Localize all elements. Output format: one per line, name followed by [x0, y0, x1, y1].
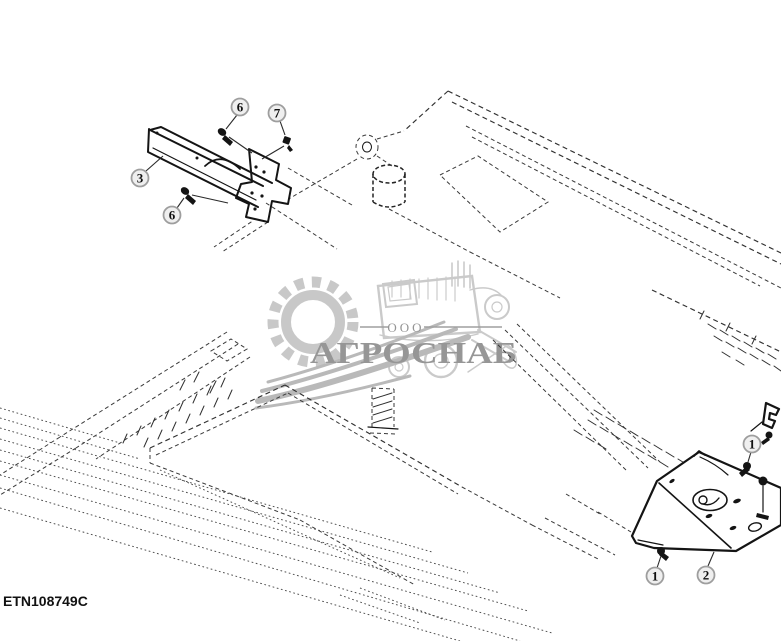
cylinder-port [373, 165, 405, 207]
clip-bracket [751, 403, 779, 431]
callout-6-lower: 6 [164, 195, 229, 224]
callout-number: 7 [274, 106, 281, 121]
callout-number: 1 [652, 569, 659, 584]
platform-outline [150, 385, 532, 585]
watermark-logo: ООО АГРОСНАБ [256, 261, 520, 408]
watermark-org-name: АГРОСНАБ [310, 335, 517, 370]
callout-number: 2 [703, 568, 710, 583]
hanging-strap [368, 388, 398, 434]
callout-1-upper: 1 [744, 436, 761, 463]
mount-lug [356, 131, 404, 166]
watermark-org-type: ООО [387, 320, 424, 335]
hatch-plate-band [574, 410, 686, 467]
callout-3: 3 [132, 156, 164, 187]
bolt-icon [216, 127, 233, 146]
callout-2: 2 [698, 552, 715, 584]
bracket-part [148, 123, 352, 249]
exploded-parts-drawing: ООО АГРОСНАБ [0, 0, 781, 641]
drawing-number: ETN108749C [3, 593, 88, 609]
callout-number: 6 [237, 100, 244, 115]
bolt-icon [282, 136, 293, 152]
callout-number: 3 [137, 171, 144, 186]
bolt-icon [761, 432, 773, 446]
callout-number: 1 [749, 437, 756, 452]
callout-7: 7 [262, 105, 286, 160]
callout-number: 6 [169, 208, 176, 223]
parts-diagram-page: ООО АГРОСНАБ [0, 0, 781, 641]
mounting-plate-part [632, 451, 781, 551]
hatch-right-band [708, 324, 781, 371]
callout-1-lower: 1 [647, 556, 664, 585]
access-panel-outline [440, 156, 548, 232]
